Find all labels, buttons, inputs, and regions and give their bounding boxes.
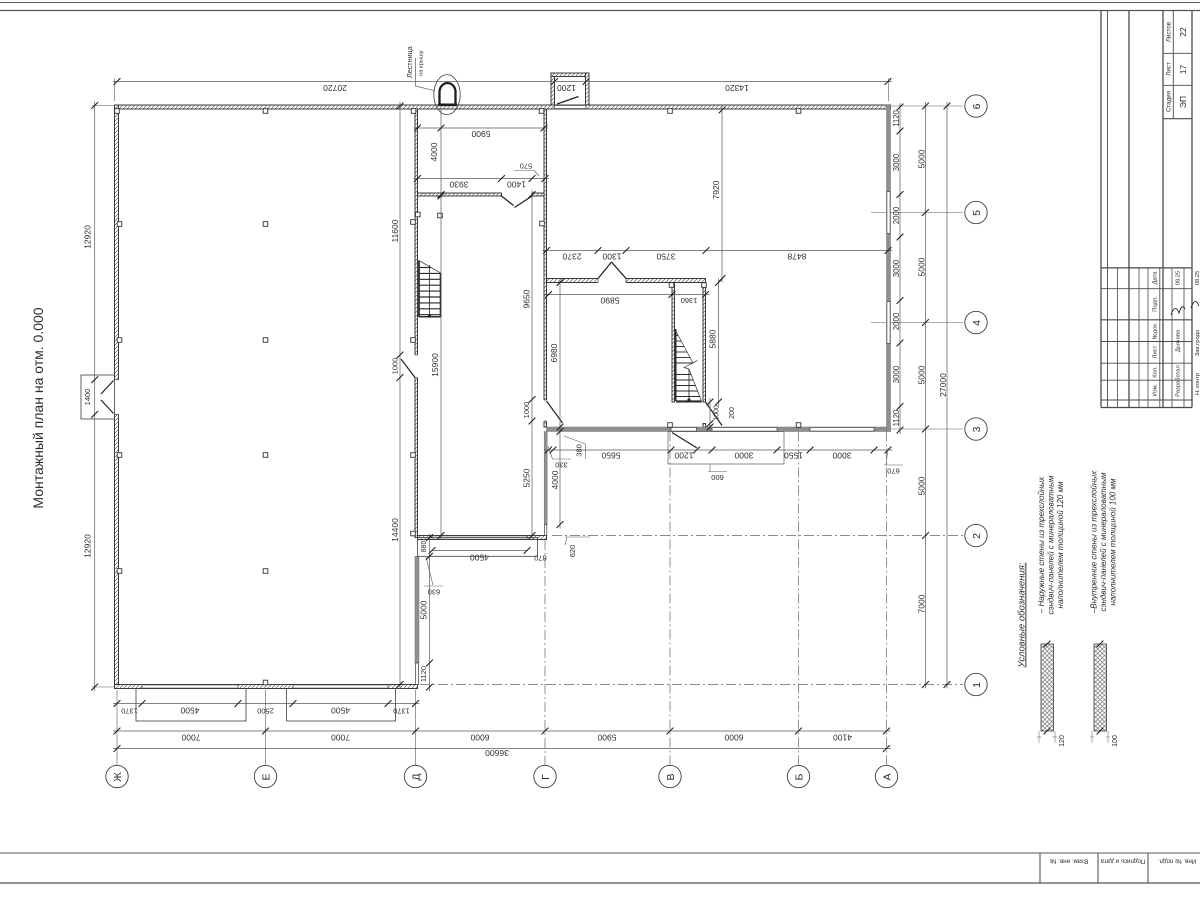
svg-text:1200: 1200 [557, 83, 576, 93]
svg-text:1300: 1300 [602, 251, 621, 261]
svg-text:5650: 5650 [601, 450, 620, 460]
svg-text:Лист: Лист [1166, 62, 1173, 76]
svg-text:4500: 4500 [331, 705, 350, 715]
svg-text:Условные обозначения:: Условные обозначения: [1016, 562, 1027, 668]
svg-text:5880: 5880 [708, 329, 718, 348]
svg-text:15900: 15900 [430, 353, 440, 377]
svg-text:3000: 3000 [892, 365, 901, 383]
svg-text:7000: 7000 [917, 594, 927, 613]
svg-text:08.25: 08.25 [1195, 271, 1200, 286]
svg-text:100: 100 [1112, 735, 1119, 747]
svg-text:Лестница: Лестница [405, 46, 414, 78]
svg-text:ЭП: ЭП [1178, 96, 1188, 108]
svg-text:3000: 3000 [892, 259, 901, 277]
svg-text:14400: 14400 [390, 518, 400, 542]
svg-text:380: 380 [575, 444, 584, 457]
svg-text:20720: 20720 [323, 83, 347, 93]
svg-text:7000: 7000 [181, 732, 200, 742]
svg-text:36600: 36600 [485, 748, 509, 758]
svg-text:1120: 1120 [419, 666, 428, 682]
svg-text:Г: Г [540, 774, 552, 780]
svg-text:5000: 5000 [917, 149, 927, 168]
svg-text:5000: 5000 [917, 257, 927, 276]
svg-text:14320: 14320 [725, 83, 749, 93]
svg-text:– Наружные стены из трехслойны: – Наружные стены из трехслойных [1037, 476, 1046, 614]
svg-text:1360: 1360 [681, 296, 698, 305]
svg-text:870: 870 [534, 553, 547, 562]
svg-text:2370: 2370 [562, 251, 581, 261]
svg-text:3000: 3000 [734, 450, 753, 460]
svg-text:Подп.: Подп. [1153, 296, 1159, 312]
svg-text:1000: 1000 [714, 405, 721, 421]
svg-text:3750: 3750 [656, 251, 675, 261]
svg-text:1000: 1000 [391, 358, 400, 375]
svg-text:08.25: 08.25 [1176, 271, 1182, 286]
svg-text:4500: 4500 [470, 552, 489, 562]
svg-text:6000: 6000 [724, 732, 743, 742]
svg-text:1400: 1400 [507, 179, 526, 189]
svg-text:2: 2 [971, 533, 983, 539]
svg-text:1370: 1370 [121, 706, 138, 715]
svg-text:5900: 5900 [471, 129, 490, 139]
svg-text:Дьякова: Дьякова [1176, 329, 1182, 352]
svg-text:3000: 3000 [832, 450, 851, 460]
svg-text:3: 3 [971, 426, 983, 432]
svg-text:6980: 6980 [549, 343, 559, 362]
svg-text:Лист: Лист [1153, 345, 1159, 358]
svg-text:4100: 4100 [833, 732, 852, 742]
svg-text:Инв. № подл.: Инв. № подл. [1157, 857, 1196, 864]
svg-text:17: 17 [1178, 65, 1188, 75]
svg-text:Взам. инв. №: Взам. инв. № [1049, 857, 1088, 864]
svg-text:сэндвич-панелей с минераловатн: сэндвич-панелей с минераловатным [1046, 475, 1055, 614]
svg-text:1550: 1550 [784, 450, 803, 460]
svg-text:наполнителем толщиной 120 мм: наполнителем толщиной 120 мм [1056, 481, 1065, 608]
svg-text:Стадия: Стадия [1166, 91, 1173, 112]
svg-text:5250: 5250 [522, 468, 532, 487]
svg-text:4000: 4000 [429, 142, 439, 161]
svg-text:2000: 2000 [892, 206, 901, 224]
svg-text:Изм.: Изм. [1153, 383, 1159, 396]
svg-text:Листов: Листов [1166, 21, 1173, 42]
svg-text:670: 670 [887, 466, 900, 475]
svg-text:27000: 27000 [938, 373, 948, 397]
svg-text:880: 880 [421, 541, 428, 553]
svg-text:4: 4 [971, 320, 983, 326]
svg-text:–Внутренние стены из трехслойн: –Внутренние стены из трехслойных [1089, 470, 1098, 614]
svg-text:8478: 8478 [787, 251, 806, 261]
svg-text:Разработал: Разработал [1176, 365, 1182, 397]
svg-text:2500: 2500 [257, 706, 274, 715]
svg-text:5900: 5900 [597, 732, 616, 742]
svg-text:В: В [665, 773, 677, 780]
svg-text:Ж: Ж [112, 772, 124, 782]
svg-text:Б: Б [793, 773, 805, 780]
svg-text:200: 200 [729, 407, 736, 419]
svg-text:1120: 1120 [892, 409, 901, 426]
svg-text:120: 120 [1059, 735, 1066, 747]
svg-text:7920: 7920 [711, 180, 721, 199]
svg-text:на крышу: на крышу [419, 50, 425, 76]
svg-text:570: 570 [520, 161, 533, 170]
svg-text:1: 1 [971, 682, 983, 688]
svg-text:5000: 5000 [917, 365, 927, 384]
svg-text:Подпись и дата: Подпись и дата [1100, 857, 1145, 864]
svg-text:5000: 5000 [917, 476, 927, 495]
svg-text:наполнителем толщиной 100 мм: наполнителем толщиной 100 мм [1108, 478, 1117, 605]
svg-text:6: 6 [971, 103, 983, 109]
svg-text:1370: 1370 [393, 706, 410, 715]
svg-text:Д: Д [410, 773, 422, 780]
svg-text:9650: 9650 [522, 289, 532, 308]
svg-text:1200: 1200 [674, 450, 693, 460]
svg-text:Н. контр: Н. контр [1195, 373, 1200, 395]
svg-text:Зав.гродо: Зав.гродо [1195, 330, 1200, 356]
svg-text:А: А [881, 773, 893, 780]
svg-text:600: 600 [711, 473, 724, 482]
svg-text:22: 22 [1178, 27, 1188, 37]
svg-text:7000: 7000 [331, 732, 350, 742]
svg-text:11600: 11600 [390, 219, 400, 242]
svg-text:4000: 4000 [550, 470, 560, 489]
svg-text:№док.: №док. [1153, 322, 1159, 339]
svg-text:5890: 5890 [600, 295, 619, 305]
svg-text:5: 5 [971, 210, 983, 216]
svg-text:1120: 1120 [892, 109, 901, 126]
svg-text:2000: 2000 [892, 312, 901, 330]
svg-text:6000: 6000 [470, 732, 489, 742]
svg-text:330: 330 [555, 460, 568, 469]
svg-text:12920: 12920 [83, 225, 93, 249]
svg-text:1000: 1000 [522, 402, 531, 419]
svg-text:Кол.: Кол. [1153, 366, 1159, 378]
svg-text:620: 620 [568, 545, 577, 558]
svg-text:Дата: Дата [1153, 271, 1159, 285]
svg-text:сэндвич-панелей с минераловатн: сэндвич-панелей с минераловатным [1099, 472, 1108, 611]
svg-text:Монтажный план на отм. 0.000: Монтажный план на отм. 0.000 [30, 307, 46, 508]
svg-text:Е: Е [260, 773, 272, 780]
svg-text:4500: 4500 [180, 705, 199, 715]
svg-text:3930: 3930 [449, 179, 468, 189]
svg-text:12920: 12920 [83, 534, 93, 558]
svg-text:1400: 1400 [83, 389, 92, 406]
svg-text:5000: 5000 [419, 600, 429, 619]
svg-text:3000: 3000 [892, 153, 901, 171]
